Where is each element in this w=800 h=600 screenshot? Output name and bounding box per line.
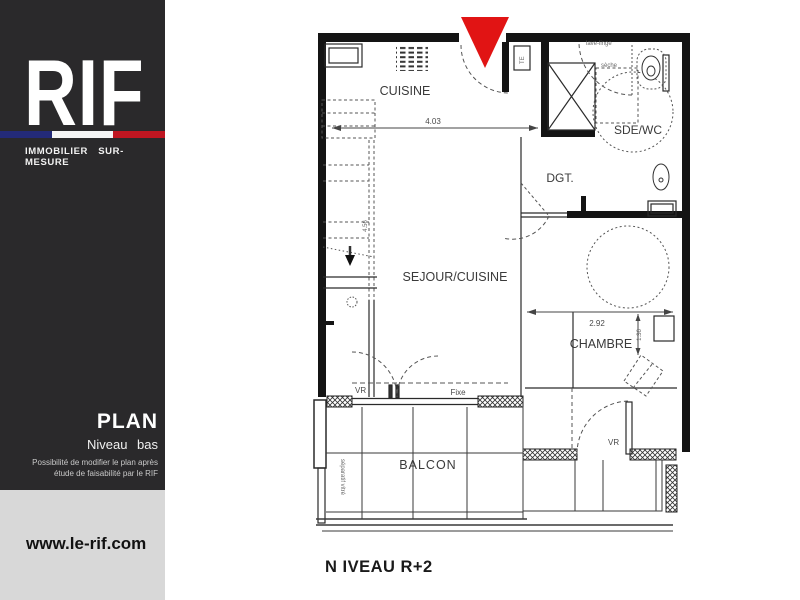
kitchen-hob-icon	[396, 45, 428, 71]
sidebar-footer: www.le-rif.com	[0, 490, 165, 600]
door-swings	[352, 42, 632, 454]
brochure-page: CUISINE SDE/WC DGT. SEJOUR/CUISINE CHAMB…	[0, 0, 800, 600]
label-vr-door: VR	[608, 438, 619, 447]
dim-sejour-width: 4.03	[425, 117, 441, 126]
room-label-cuisine: CUISINE	[380, 84, 431, 98]
website-url: www.le-rif.com	[26, 534, 146, 554]
dim-chambre-width: 2.92	[589, 319, 605, 328]
logo-tagline: IMMOBILIER SUR-MESURE	[25, 146, 165, 168]
rif-logo: RIF	[24, 46, 144, 140]
plan-title: PLAN	[87, 410, 158, 434]
sidebar: RIF IMMOBILIER SUR-MESURE PLAN Niveau ba…	[0, 0, 165, 490]
flag-red-segment	[113, 131, 165, 138]
disclaimer: Possibilité de modifier le plan après ét…	[32, 458, 158, 480]
hatched-walls	[327, 396, 677, 512]
label-fixed-window: Fixe	[450, 388, 466, 397]
dim-chambre-depth: 1.36	[637, 329, 643, 341]
plan-caption: N IVEAU R+2	[325, 558, 433, 576]
room-label-sejour: SEJOUR/CUISINE	[403, 270, 508, 284]
room-label-balcon: BALCON	[399, 458, 456, 472]
flag-blue-segment	[0, 131, 52, 138]
entry-marker-triangle	[461, 17, 509, 68]
dim-stair: 4.56	[363, 220, 369, 232]
flag-white-segment	[52, 131, 113, 138]
disclaimer-line1: Possibilité de modifier le plan après	[32, 458, 158, 469]
label-washer: lave-linge	[586, 41, 612, 47]
disclaimer-line2: étude de faisabilité par le RIF	[32, 469, 158, 480]
room-label-sde-wc: SDE/WC	[614, 123, 662, 137]
dashed-details	[322, 49, 673, 450]
balcony-grid	[316, 407, 673, 531]
french-flag-bar	[0, 131, 165, 138]
plan-title-block: PLAN Niveau bas	[87, 410, 158, 452]
label-dryer: sèche	[601, 63, 618, 69]
plan-labels: CUISINE SDE/WC DGT. SEJOUR/CUISINE CHAMB…	[325, 41, 662, 576]
washbasin-icon	[653, 164, 669, 190]
label-vr-window: VR	[355, 386, 366, 395]
plan-subtitle: Niveau bas	[87, 437, 158, 452]
label-glass-divider: séparatif vitré	[339, 459, 345, 496]
room-label-chambre: CHAMBRE	[570, 337, 633, 351]
dimensions	[332, 125, 673, 355]
room-label-dgt: DGT.	[546, 171, 573, 185]
label-electrical-panel: TE	[520, 56, 526, 64]
